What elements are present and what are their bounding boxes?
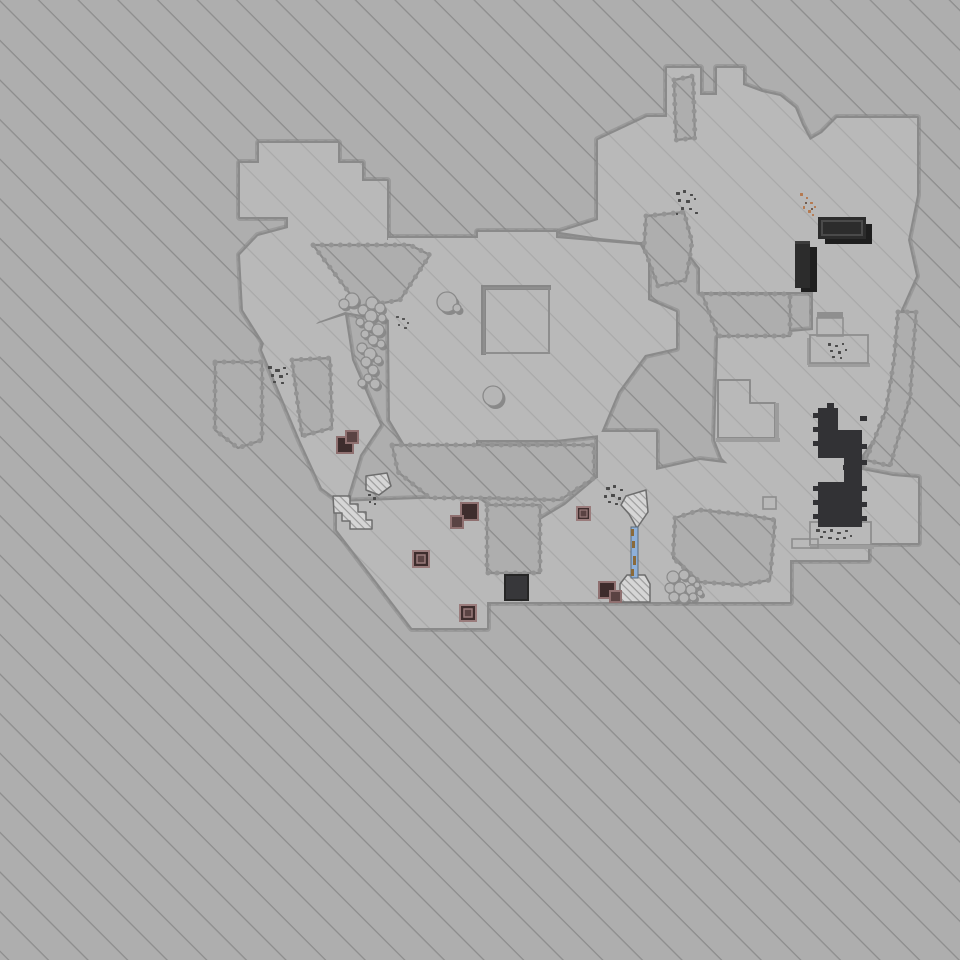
unexplored-below-central	[392, 445, 594, 500]
item-marker-3	[413, 551, 429, 567]
dark-slab-vertical	[795, 241, 817, 292]
game-map-canvas[interactable]	[0, 0, 960, 960]
item-marker-5	[577, 507, 590, 520]
item-marker-4	[460, 605, 476, 621]
white-shape-pedestal	[620, 575, 650, 602]
game-map-screen	[0, 0, 960, 960]
small-outline-a	[763, 497, 776, 509]
unexplored-band-north-of-east-region	[702, 294, 790, 336]
unexplored-between-south-rooms	[487, 505, 540, 573]
dark-door-block	[505, 575, 528, 600]
dark-slab-horizontal	[818, 217, 872, 244]
unexplored-west-left	[215, 362, 262, 448]
unexplored-tower-slot	[674, 76, 695, 140]
floor-mid-connector	[598, 432, 656, 480]
climbing-pole	[631, 527, 638, 578]
